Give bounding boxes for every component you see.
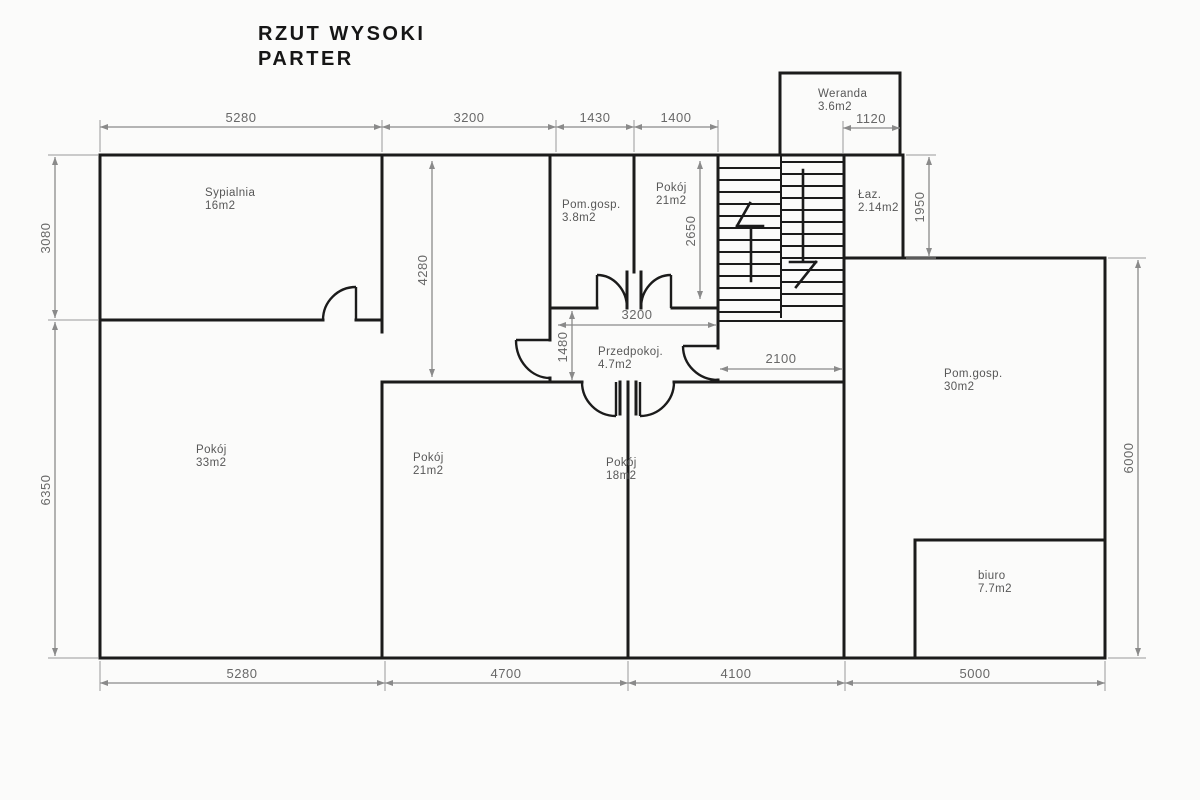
dim-right-1950: 1950 xyxy=(912,192,927,223)
dim-inner-2650: 2650 xyxy=(683,216,698,247)
room-label-weranda: Weranda 3.6m2 xyxy=(818,88,867,113)
room-label-pokoj-33: Pokój 33m2 xyxy=(196,444,227,469)
dim-hall-3200: 3200 xyxy=(622,307,653,322)
room-name: Pokój xyxy=(196,444,227,456)
room-area: 30m2 xyxy=(944,381,974,393)
dim-top-1430: 1430 xyxy=(580,110,611,125)
room-area: 21m2 xyxy=(656,195,686,207)
dim-bottom-4100: 4100 xyxy=(721,666,752,681)
door-pokoj21-dolny xyxy=(582,382,616,416)
floor-plan-page: RZUT WYSOKI PARTER xyxy=(0,0,1200,800)
dim-weranda-1120: 1120 xyxy=(856,111,886,126)
room-name: Pom.gosp. xyxy=(562,199,621,211)
room-name: Przedpokoj. xyxy=(598,346,663,358)
room-label-pom-gosp-maly: Pom.gosp. 3.8m2 xyxy=(562,199,621,224)
room-label-pokoj-21-gorny: Pokój 21m2 xyxy=(656,182,687,207)
room-label-biuro: biuro 7.7m2 xyxy=(978,570,1012,595)
room-area: 33m2 xyxy=(196,457,226,469)
dimension-labels: 5280 3200 1430 1400 1120 5280 4700 4100 … xyxy=(38,110,1136,681)
stairs-treads-right xyxy=(781,162,844,306)
room-label-przedpokoj: Przedpokoj. 4.7m2 xyxy=(598,346,663,371)
room-area: 3.8m2 xyxy=(562,212,596,224)
drawing-title: RZUT WYSOKI PARTER xyxy=(258,23,426,70)
dim-right-6000: 6000 xyxy=(1121,443,1136,474)
dim-top-1400: 1400 xyxy=(661,110,692,125)
dim-left-6350: 6350 xyxy=(38,475,53,506)
dim-bottom-5000: 5000 xyxy=(960,666,991,681)
dim-inner-4280: 4280 xyxy=(415,255,430,286)
room-area: 21m2 xyxy=(413,465,443,477)
room-name: Sypialnia xyxy=(205,187,255,199)
dim-bottom-5280: 5280 xyxy=(227,666,258,681)
room-name: Łaz. xyxy=(858,189,881,201)
staircase xyxy=(718,155,844,321)
room-label-sypialnia: Sypialnia 16m2 xyxy=(205,187,255,212)
room-area: 3.6m2 xyxy=(818,101,852,113)
room-name: Pokój xyxy=(606,457,637,469)
door-hall-east xyxy=(683,346,718,380)
room-area: 18m2 xyxy=(606,470,636,482)
ext-right xyxy=(906,155,1146,658)
dim-hall-1480: 1480 xyxy=(555,332,570,363)
room-area: 16m2 xyxy=(205,200,235,212)
door-sypialnia xyxy=(323,287,356,320)
room-area: 7.7m2 xyxy=(978,583,1012,595)
room-labels: Sypialnia 16m2 Pokój 33m2 Pom.gosp. 3.8m… xyxy=(196,88,1012,595)
title-line-2: PARTER xyxy=(258,48,354,70)
room-name: biuro xyxy=(978,570,1006,582)
dim-top-5280: 5280 xyxy=(226,110,257,125)
room-name: Pokój xyxy=(656,182,687,194)
room-area: 2.14m2 xyxy=(858,202,899,214)
room-name: Pokój xyxy=(413,452,444,464)
stairs-up-arrow xyxy=(737,203,763,281)
room-name: Weranda xyxy=(818,88,867,100)
door-pomgosp-maly xyxy=(597,275,627,308)
dim-corridor-2100: 2100 xyxy=(766,351,797,366)
room-label-pokoj-18: Pokój 18m2 xyxy=(606,457,637,482)
stairs-treads-left xyxy=(718,168,781,312)
door-hall-west xyxy=(516,340,550,378)
room-label-pom-gosp-duzy: Pom.gosp. 30m2 xyxy=(944,368,1003,393)
room-label-pokoj-21-dolny: Pokój 21m2 xyxy=(413,452,444,477)
room-area: 4.7m2 xyxy=(598,359,632,371)
dim-left-3080: 3080 xyxy=(38,223,53,254)
room-name: Pom.gosp. xyxy=(944,368,1003,380)
title-line-1: RZUT WYSOKI xyxy=(258,23,426,45)
dim-top-3200: 3200 xyxy=(454,110,485,125)
floor-plan-canvas: RZUT WYSOKI PARTER xyxy=(0,0,1200,800)
door-pokoj18 xyxy=(640,382,674,416)
door-pokoj21-gorny xyxy=(641,275,671,308)
dim-bottom-4700: 4700 xyxy=(491,666,522,681)
room-label-lazienka: Łaz. 2.14m2 xyxy=(858,189,899,214)
